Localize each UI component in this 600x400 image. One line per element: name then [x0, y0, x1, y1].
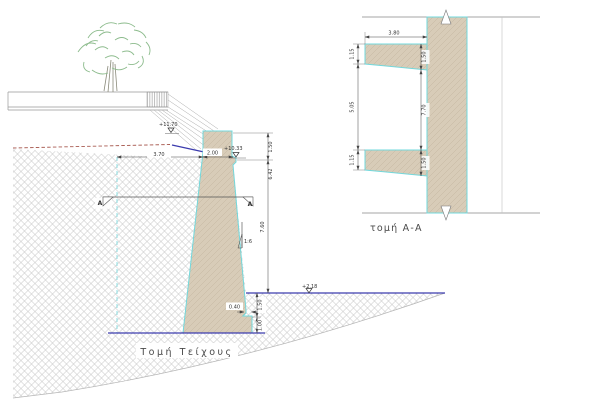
section-letter-right: A [248, 201, 253, 208]
aa-drawing-title: τομή Α-Α [370, 223, 423, 234]
dim-text: 1.50 [268, 141, 274, 152]
dim-text: 2.00 [207, 151, 218, 157]
ground-surface-dashed-line [13, 145, 170, 149]
dim-text: 1:6 [244, 239, 252, 245]
elevation-marker-crest: +11.70 [159, 122, 179, 134]
dim-text: 1.15 [350, 48, 356, 59]
cad-canvas: A A 3.70 2.00 +11.70 +10.33 +2.18 1.50 6… [0, 0, 600, 400]
band-hatch-block [147, 92, 168, 107]
dim-text: 1.15 [350, 154, 356, 165]
elevation-text: +10.33 [224, 146, 243, 152]
tree-trunk [104, 60, 117, 92]
dim-text: 1.00 [258, 320, 264, 331]
tree-foliage [78, 23, 150, 74]
elevation-text: +2.18 [302, 284, 317, 290]
promenade-band [8, 92, 168, 110]
dim-text: 6.42 [268, 168, 274, 179]
dim-text: 0.40 [229, 305, 240, 311]
dim-text: 1.50 [422, 157, 428, 168]
dim-text: 7.60 [260, 221, 266, 232]
dim-text: 3.70 [153, 152, 164, 158]
dim-text: 7.70 [422, 104, 428, 115]
dim-text: 1.50 [258, 299, 264, 310]
elevation-marker-water: +2.18 [302, 284, 317, 293]
dim-text: 3.80 [388, 31, 399, 37]
dim-text: 1.50 [422, 51, 428, 62]
aa-wall-strip [427, 17, 467, 213]
drawing-sheet: A A 3.70 2.00 +11.70 +10.33 +2.18 1.50 6… [0, 0, 600, 400]
aa-buttress-bottom [365, 150, 427, 176]
dim-buttress-length: 3.80 [365, 31, 427, 45]
crest-slope-line [172, 145, 204, 152]
tree [78, 23, 150, 92]
dim-text: 5.05 [350, 101, 356, 112]
section-letter-left: A [98, 200, 103, 207]
aa-buttress-top [365, 44, 427, 70]
main-drawing-title: Τομή Τείχους [139, 347, 233, 358]
elevation-text: +11.70 [159, 122, 178, 128]
